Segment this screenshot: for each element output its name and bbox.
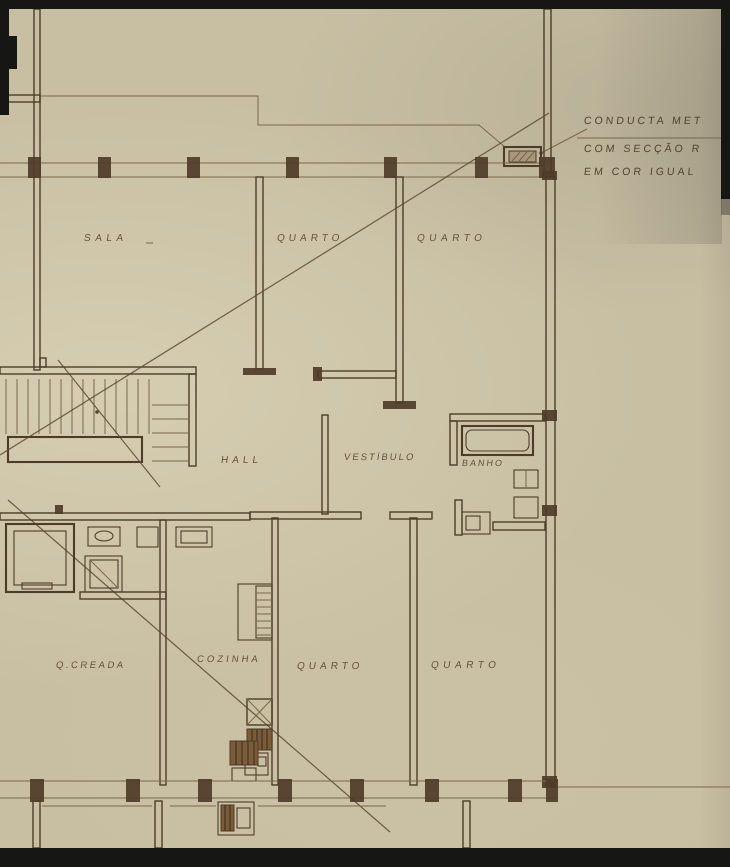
room-label-quarto-4: QUARTO (430, 660, 501, 671)
annotation-line-1: CONDUCTA MET (583, 115, 703, 127)
scan-border-right-fade (721, 199, 730, 215)
room-label-sala: SALA (83, 233, 128, 244)
scan-border-bottom (0, 848, 730, 867)
scan-border-left-blob (0, 36, 17, 69)
annotation-line-3: EM COR IGUAL (583, 166, 697, 178)
room-label-banho: BANHO (461, 458, 504, 468)
floor-plan-scan: SALA QUARTO QUARTO HALL VESTÍBULO BANHO … (0, 0, 730, 867)
room-label-q-creada: Q.CREADA (55, 660, 126, 671)
floorplan-linework (0, 0, 730, 867)
room-label-hall: HALL (220, 455, 263, 466)
room-label-quarto-1: QUARTO (276, 233, 344, 244)
room-label-cozinha: COZINHA (196, 654, 261, 665)
room-label-quarto-3: QUARTO (296, 661, 364, 672)
room-label-vestibulo: VESTÍBULO (343, 452, 416, 463)
room-label-quarto-2: QUARTO (416, 233, 487, 244)
scan-border-right (721, 9, 730, 199)
annotation-line-2: COM SECÇÃO R (583, 143, 703, 155)
scan-border-top (0, 0, 730, 9)
